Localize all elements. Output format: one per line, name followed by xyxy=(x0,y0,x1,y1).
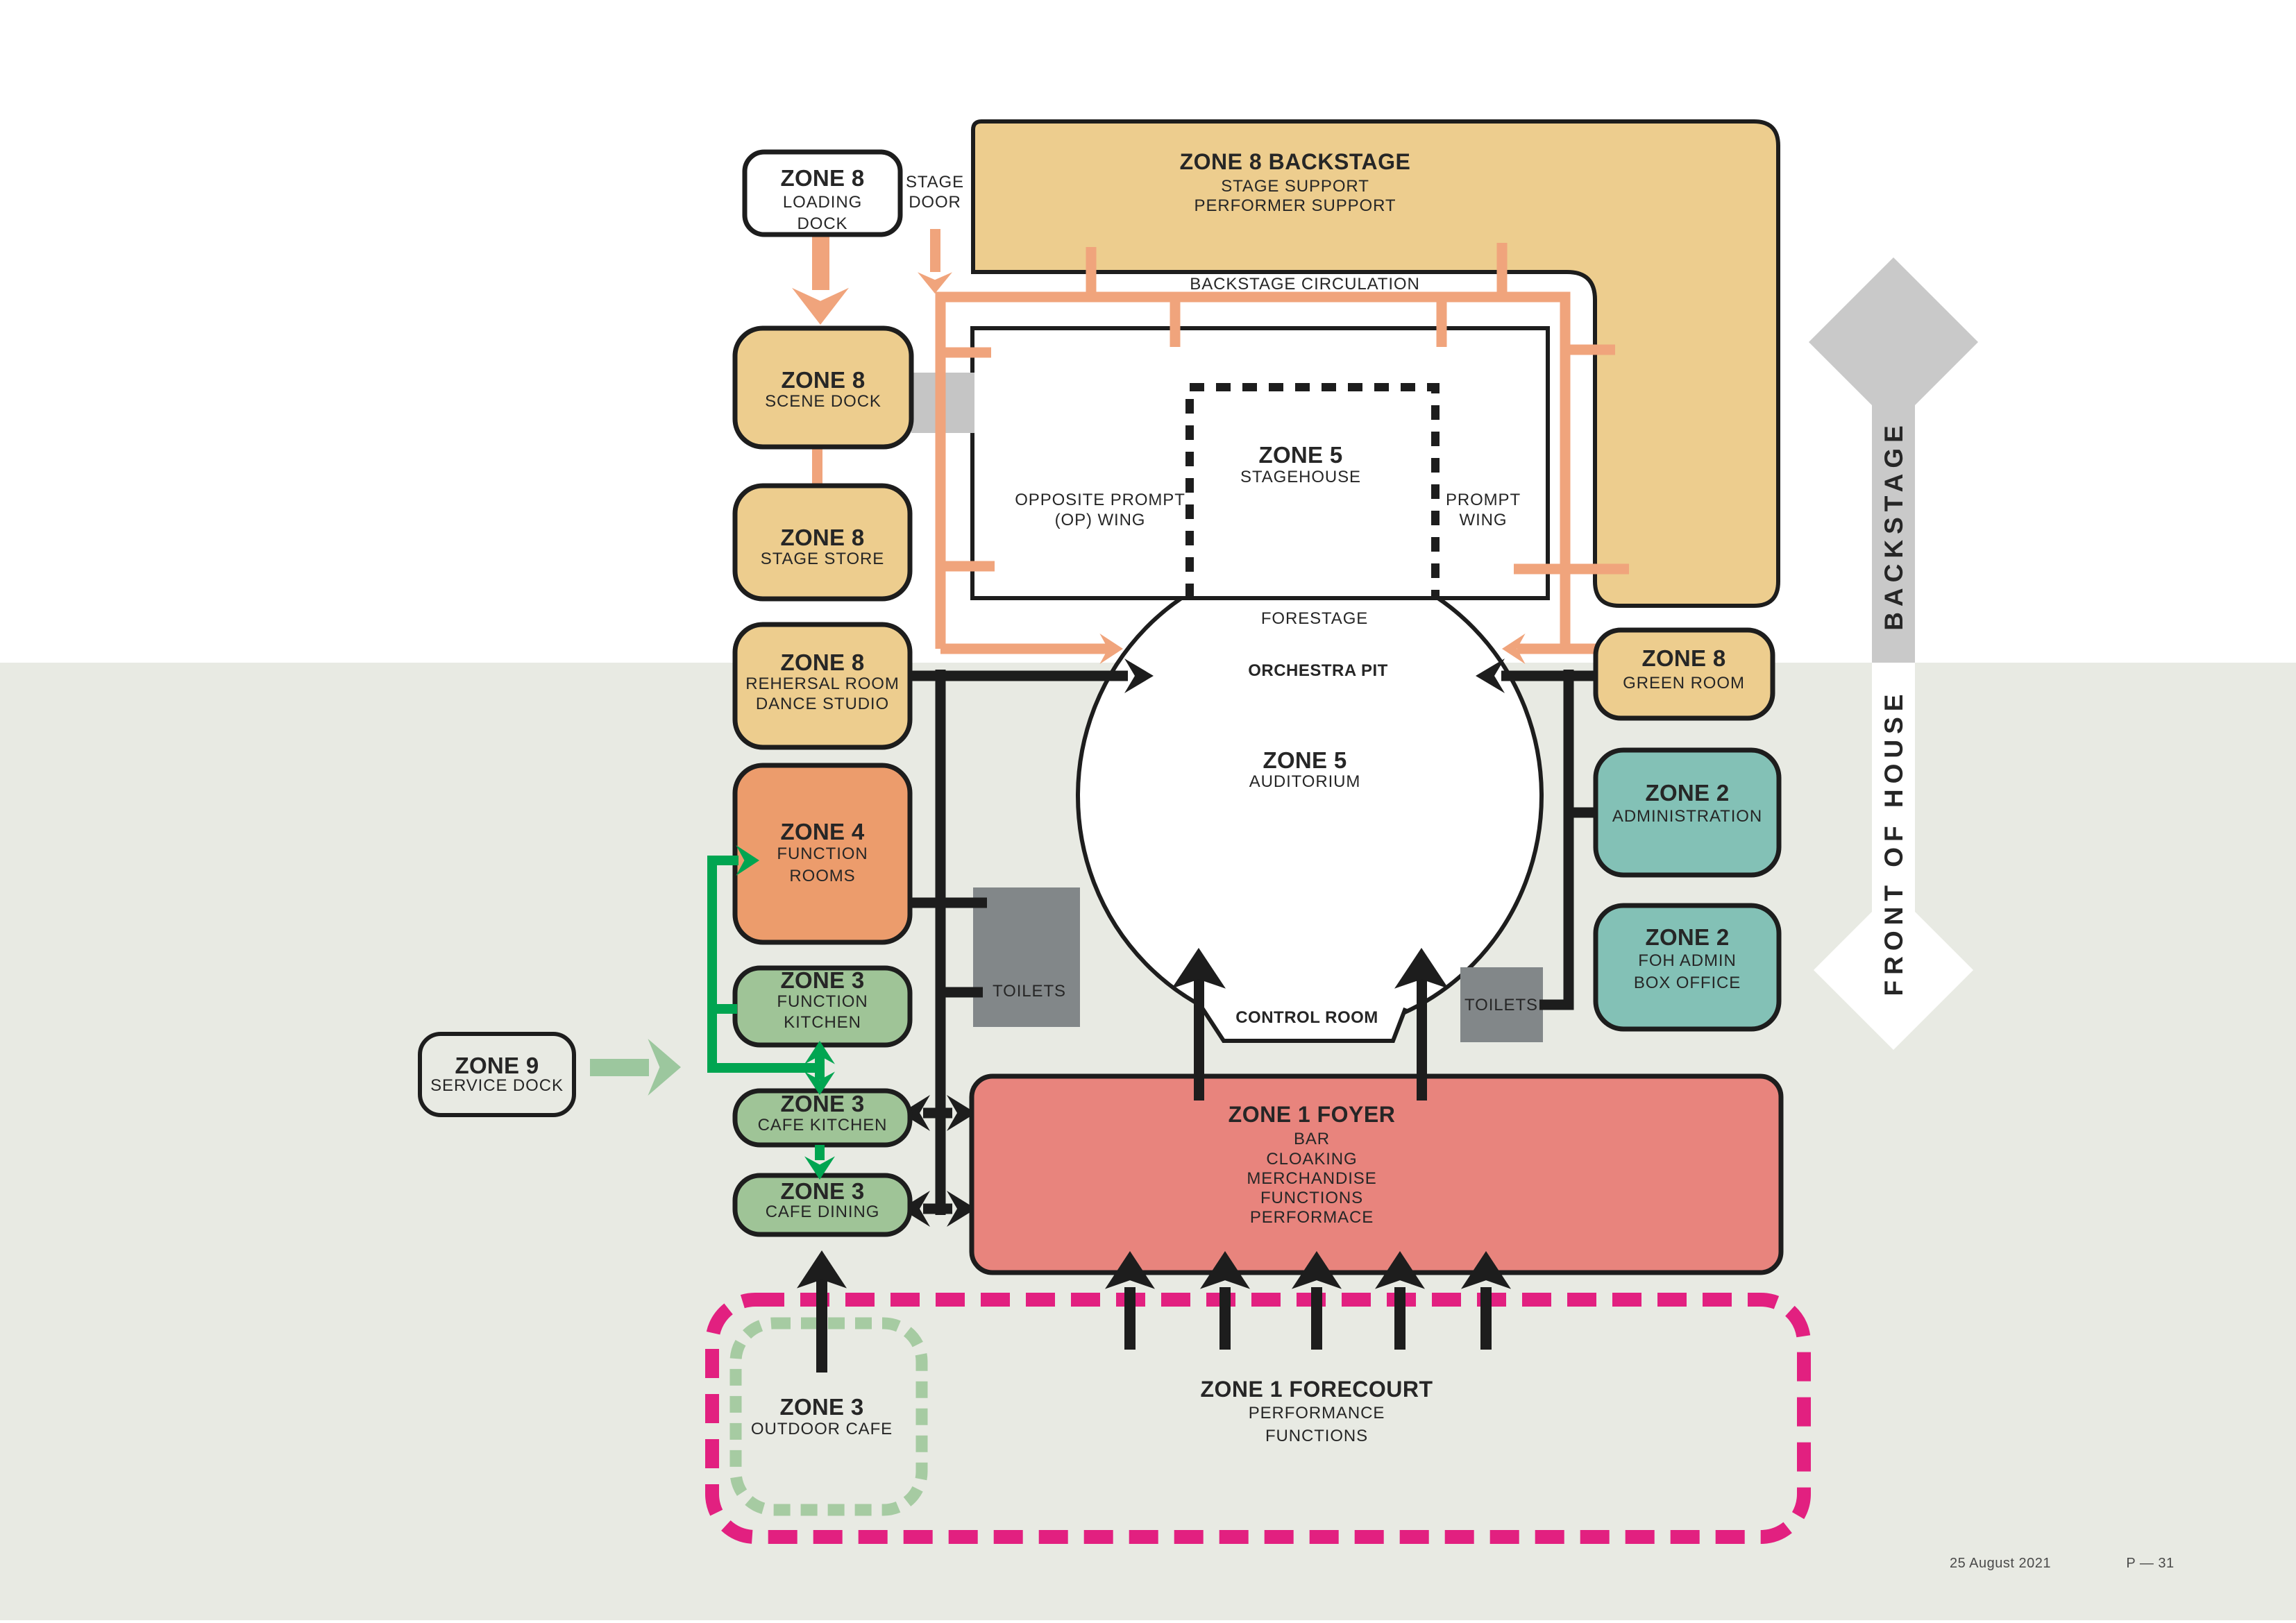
svg-text:FORESTAGE: FORESTAGE xyxy=(1261,609,1368,628)
svg-text:ZONE 8: ZONE 8 xyxy=(781,525,865,550)
svg-text:CLOAKING: CLOAKING xyxy=(1266,1150,1357,1169)
svg-text:TOILETS: TOILETS xyxy=(993,982,1066,1001)
svg-text:BACKSTAGE CIRCULATION: BACKSTAGE CIRCULATION xyxy=(1190,275,1419,294)
svg-text:ZONE 3: ZONE 3 xyxy=(781,967,865,993)
svg-text:BACKSTAGE: BACKSTAGE xyxy=(1880,420,1908,631)
svg-text:ZONE 8: ZONE 8 xyxy=(781,649,865,675)
svg-text:DANCE STUDIO: DANCE STUDIO xyxy=(756,695,889,713)
svg-text:ZONE 8: ZONE 8 xyxy=(1642,645,1726,671)
svg-text:BOX OFFICE: BOX OFFICE xyxy=(1634,974,1741,992)
svg-text:ZONE 1 FOYER: ZONE 1 FOYER xyxy=(1229,1102,1396,1127)
svg-text:ZONE 2: ZONE 2 xyxy=(1646,924,1730,950)
svg-text:FUNCTION: FUNCTION xyxy=(777,844,868,863)
svg-text:DOCK: DOCK xyxy=(797,214,848,233)
svg-text:REHERSAL ROOM: REHERSAL ROOM xyxy=(745,674,900,693)
svg-text:CONTROL ROOM: CONTROL ROOM xyxy=(1235,1008,1378,1027)
svg-text:ZONE 5: ZONE 5 xyxy=(1263,747,1347,773)
svg-text:OPPOSITE PROMPT: OPPOSITE PROMPT xyxy=(1015,491,1185,509)
svg-text:OUTDOOR CAFE: OUTDOOR CAFE xyxy=(751,1420,893,1438)
svg-text:ZONE 9: ZONE 9 xyxy=(455,1053,539,1078)
svg-text:STAGE STORE: STAGE STORE xyxy=(761,550,884,568)
svg-text:ZONE 8: ZONE 8 xyxy=(782,367,866,393)
svg-text:25 August 2021: 25 August 2021 xyxy=(1950,1556,2051,1571)
svg-text:PERFORMANCE: PERFORMANCE xyxy=(1249,1404,1385,1422)
svg-text:WING: WING xyxy=(1460,511,1508,529)
svg-text:SCENE DOCK: SCENE DOCK xyxy=(765,392,881,411)
svg-text:ZONE 3: ZONE 3 xyxy=(781,1091,865,1116)
svg-text:CAFE DINING: CAFE DINING xyxy=(766,1203,880,1221)
svg-text:PROMPT: PROMPT xyxy=(1446,491,1521,509)
svg-text:ZONE 1 FORECOURT: ZONE 1 FORECOURT xyxy=(1200,1377,1433,1402)
svg-text:ROOMS: ROOMS xyxy=(789,867,855,885)
svg-text:TOILETS: TOILETS xyxy=(1464,996,1538,1014)
svg-text:P — 31: P — 31 xyxy=(2126,1556,2174,1571)
svg-text:ZONE 8: ZONE 8 xyxy=(781,165,865,191)
svg-text:MERCHANDISE: MERCHANDISE xyxy=(1247,1169,1376,1188)
svg-text:STAGE SUPPORT: STAGE SUPPORT xyxy=(1221,177,1369,196)
svg-text:SERVICE DOCK: SERVICE DOCK xyxy=(430,1076,564,1095)
svg-text:BAR: BAR xyxy=(1294,1130,1330,1148)
svg-text:FUNCTION: FUNCTION xyxy=(777,992,868,1011)
svg-text:ZONE 2: ZONE 2 xyxy=(1646,780,1730,806)
svg-text:ORCHESTRA PIT: ORCHESTRA PIT xyxy=(1248,661,1388,680)
svg-text:DOOR: DOOR xyxy=(909,193,961,212)
svg-text:CAFE KITCHEN: CAFE KITCHEN xyxy=(758,1116,888,1135)
svg-text:PERFORMACE: PERFORMACE xyxy=(1250,1208,1374,1227)
svg-text:LOADING: LOADING xyxy=(783,193,862,212)
svg-text:KITCHEN: KITCHEN xyxy=(784,1013,861,1032)
svg-text:ZONE 3: ZONE 3 xyxy=(780,1394,864,1420)
svg-text:FRONT OF HOUSE: FRONT OF HOUSE xyxy=(1880,689,1908,996)
svg-text:ZONE 3: ZONE 3 xyxy=(781,1178,865,1204)
svg-text:GREEN ROOM: GREEN ROOM xyxy=(1623,674,1745,692)
svg-text:ZONE 8 BACKSTAGE: ZONE 8 BACKSTAGE xyxy=(1180,149,1411,174)
svg-text:FUNCTIONS: FUNCTIONS xyxy=(1265,1427,1368,1445)
svg-text:(OP) WING: (OP) WING xyxy=(1055,511,1146,529)
svg-text:AUDITORIUM: AUDITORIUM xyxy=(1249,772,1361,791)
svg-text:ZONE 4: ZONE 4 xyxy=(781,819,865,844)
svg-text:ZONE 5: ZONE 5 xyxy=(1259,442,1343,468)
svg-text:STAGEHOUSE: STAGEHOUSE xyxy=(1240,468,1361,486)
svg-text:FUNCTIONS: FUNCTIONS xyxy=(1260,1189,1363,1207)
svg-text:FOH ADMIN: FOH ADMIN xyxy=(1638,951,1736,970)
svg-text:PERFORMER SUPPORT: PERFORMER SUPPORT xyxy=(1195,196,1396,215)
svg-text:ADMINISTRATION: ADMINISTRATION xyxy=(1612,807,1762,826)
svg-text:STAGE: STAGE xyxy=(906,173,964,192)
